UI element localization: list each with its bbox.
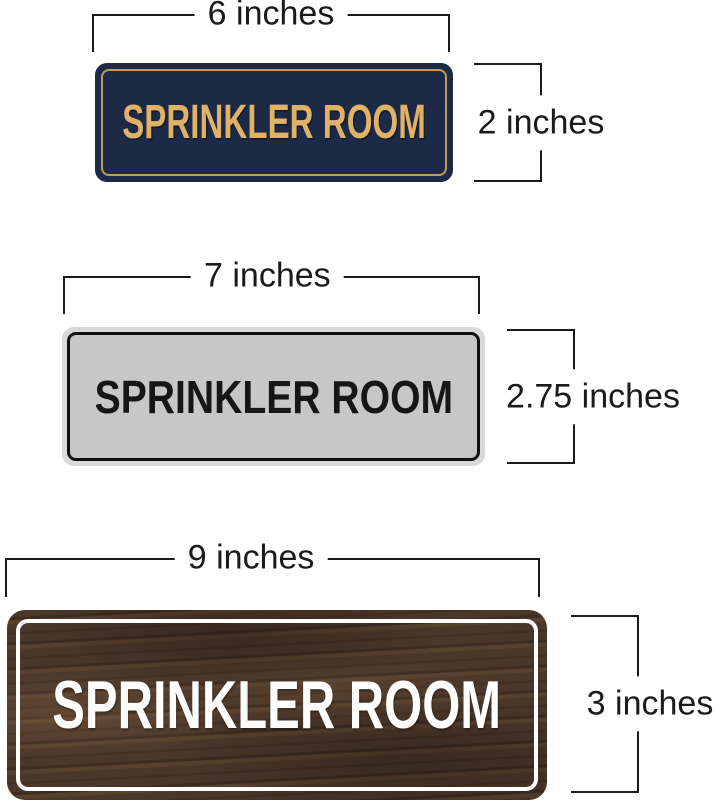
height-dimension-label: 2 inches xyxy=(474,95,609,150)
dimension-tick xyxy=(448,14,450,52)
sign-inner-border: SPRINKLER ROOM xyxy=(67,332,480,461)
dimension-tick xyxy=(507,329,575,331)
height-dimension-label: 2.75 inches xyxy=(502,369,684,424)
width-dimension-label: 6 inches xyxy=(195,0,348,34)
product-size-chart: 6 inches SPRINKLER ROOM 2 inches 7 inche… xyxy=(0,0,722,805)
sign-text: SPRINKLER ROOM xyxy=(53,666,502,744)
sign-silver-black: SPRINKLER ROOM xyxy=(62,327,485,466)
dimension-tick xyxy=(92,14,94,52)
width-dimension-label: 7 inches xyxy=(191,257,344,296)
dimension-tick xyxy=(538,558,540,597)
height-dimension-label: 3 inches xyxy=(583,676,718,731)
dimension-tick xyxy=(474,180,542,182)
sign-inner-border: SPRINKLER ROOM xyxy=(101,69,447,176)
width-dimension-label: 9 inches xyxy=(175,539,328,578)
sign-navy-gold: SPRINKLER ROOM xyxy=(95,63,453,182)
dimension-tick xyxy=(478,276,480,314)
dimension-tick xyxy=(474,63,542,65)
sign-walnut-white: SPRINKLER ROOM xyxy=(7,610,547,800)
dimension-tick xyxy=(63,276,65,314)
dimension-tick xyxy=(571,615,639,617)
dimension-tick xyxy=(571,791,639,793)
dimension-tick xyxy=(5,558,7,597)
sign-text: SPRINKLER ROOM xyxy=(94,370,452,424)
sign-text: SPRINKLER ROOM xyxy=(122,95,426,150)
sign-inner-border: SPRINKLER ROOM xyxy=(16,619,538,791)
dimension-tick xyxy=(507,462,575,464)
